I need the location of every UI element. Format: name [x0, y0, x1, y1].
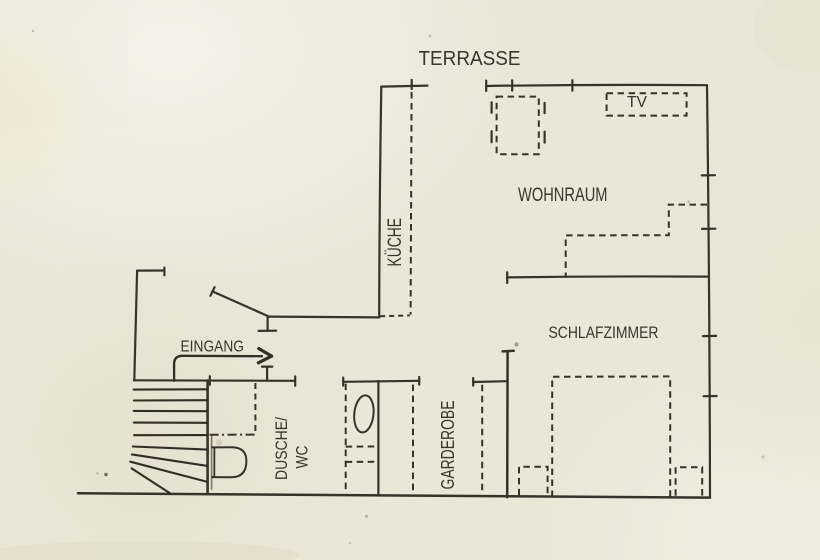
svg-text:WC: WC	[294, 445, 312, 468]
svg-text:SCHLAFZIMMER: SCHLAFZIMMER	[549, 323, 659, 342]
svg-text:EINGANG: EINGANG	[181, 339, 245, 356]
svg-text:KÜCHE: KÜCHE	[385, 218, 406, 267]
svg-text:DUSCHE/: DUSCHE/	[273, 417, 291, 480]
svg-text:GARDEROBE: GARDEROBE	[438, 401, 458, 490]
svg-text:WOHNRAUM: WOHNRAUM	[518, 184, 608, 206]
svg-text:TV: TV	[627, 94, 648, 111]
svg-text:TERRASSE: TERRASSE	[419, 48, 521, 70]
